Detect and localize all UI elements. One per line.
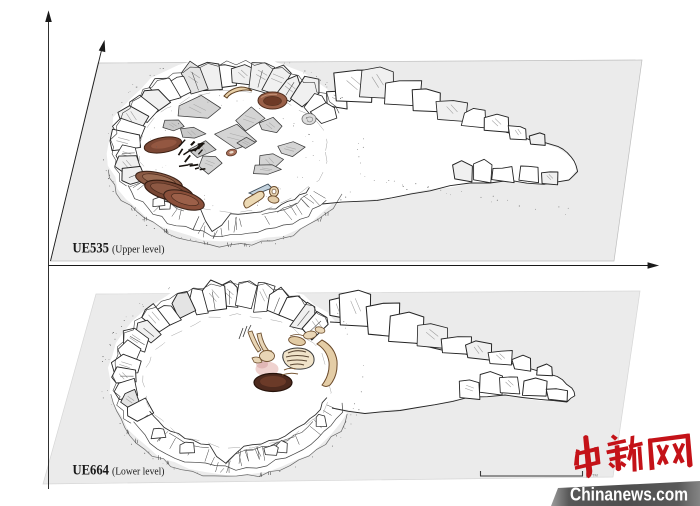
svg-text:(Upper level): (Upper level) [112,244,165,256]
svg-text:(Lower level): (Lower level) [112,466,165,478]
svg-text:UE664: UE664 [73,463,110,479]
svg-text:Chinanews.com: Chinanews.com [570,485,688,505]
svg-text:UE535: UE535 [73,241,110,257]
svg-text:TM: TM [592,473,598,478]
